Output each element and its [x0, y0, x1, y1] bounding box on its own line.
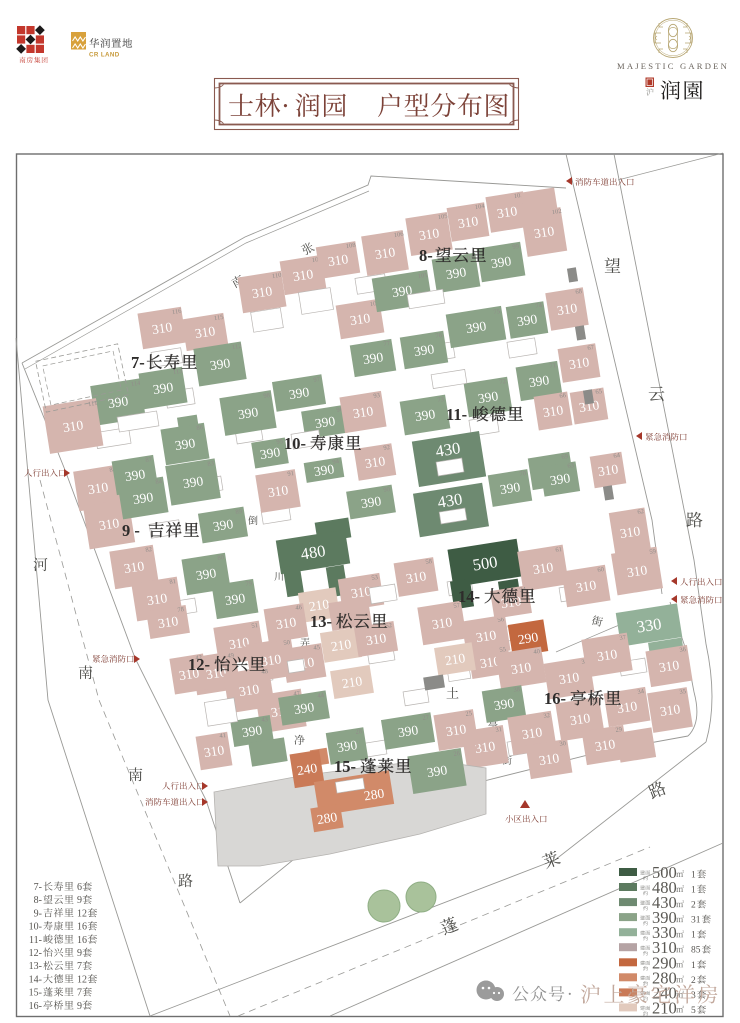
svg-text:1: 1: [691, 871, 696, 881]
svg-text:68: 68: [575, 288, 583, 296]
svg-text:10-: 10-: [284, 434, 306, 453]
svg-text:59: 59: [649, 548, 657, 556]
svg-text:9: 9: [77, 948, 82, 959]
svg-text:390: 390: [132, 489, 155, 507]
svg-text:16: 16: [77, 935, 87, 946]
svg-text:310: 310: [275, 614, 298, 632]
svg-text:MAJESTIC GARDEN: MAJESTIC GARDEN: [617, 61, 729, 71]
svg-text:240: 240: [296, 760, 319, 778]
svg-text:16-: 16-: [29, 1001, 42, 1012]
svg-text:310: 310: [496, 203, 519, 221]
svg-text:9-: 9-: [34, 908, 42, 919]
svg-text:390: 390: [397, 722, 420, 740]
svg-text:8-: 8-: [34, 895, 42, 906]
svg-text:11-: 11-: [446, 405, 467, 424]
svg-text:390: 390: [174, 435, 197, 453]
svg-text:60: 60: [597, 566, 605, 574]
svg-text:310: 310: [62, 417, 85, 435]
svg-text:110: 110: [272, 272, 282, 280]
svg-text:310: 310: [349, 310, 372, 328]
svg-text:49: 49: [227, 652, 235, 660]
svg-text:310: 310: [431, 614, 454, 632]
svg-text:310: 310: [364, 453, 387, 471]
svg-text:500: 500: [471, 552, 498, 575]
svg-text:45: 45: [313, 644, 321, 652]
svg-text:430: 430: [436, 489, 463, 512]
svg-text:390: 390: [107, 393, 130, 411]
svg-text:1: 1: [691, 931, 696, 941]
svg-text:390: 390: [237, 404, 260, 422]
svg-text:310: 310: [475, 627, 498, 645]
svg-text:25: 25: [465, 710, 473, 718]
svg-text:93: 93: [373, 392, 381, 400]
svg-text:310: 310: [87, 479, 110, 497]
svg-text:390: 390: [209, 355, 232, 373]
svg-text:95: 95: [276, 438, 284, 446]
svg-text:390: 390: [360, 493, 383, 511]
svg-text:78: 78: [177, 606, 185, 614]
svg-text:390: 390: [314, 413, 337, 431]
svg-text:390: 390: [241, 722, 264, 740]
svg-text:15-: 15-: [334, 757, 356, 776]
svg-text:53: 53: [371, 574, 379, 582]
svg-text:280: 280: [363, 785, 386, 803]
svg-text:112: 112: [232, 343, 242, 351]
svg-text:31: 31: [495, 726, 503, 734]
svg-text:310: 310: [405, 568, 428, 586]
svg-text:32: 32: [543, 712, 551, 720]
svg-text:310: 310: [194, 323, 217, 341]
svg-text:43: 43: [261, 716, 269, 724]
svg-text:99: 99: [512, 243, 520, 251]
svg-text:330: 330: [635, 614, 662, 637]
svg-text:390: 390: [362, 349, 385, 367]
svg-text:310: 310: [365, 630, 388, 648]
svg-text:390: 390: [414, 406, 437, 424]
svg-text:7: 7: [77, 988, 82, 999]
svg-text:310: 310: [292, 266, 315, 284]
svg-text:210: 210: [330, 636, 353, 654]
svg-text:73: 73: [437, 396, 445, 404]
svg-text:390: 390: [499, 479, 522, 497]
svg-text:310: 310: [98, 515, 121, 533]
svg-text:9: 9: [77, 895, 82, 906]
svg-text:310: 310: [418, 225, 441, 243]
svg-text:31: 31: [691, 916, 701, 926]
svg-text:13-: 13-: [29, 961, 42, 972]
svg-text:310: 310: [594, 736, 617, 754]
svg-text:111: 111: [88, 400, 98, 408]
svg-text:390: 390: [288, 384, 311, 402]
svg-text:71: 71: [549, 362, 557, 370]
svg-text:310: 310: [538, 750, 561, 768]
svg-text:81: 81: [169, 578, 177, 586]
svg-text:90: 90: [383, 486, 391, 494]
svg-text:40: 40: [533, 648, 541, 656]
svg-text:290: 290: [517, 629, 540, 647]
svg-text:390: 390: [426, 762, 449, 780]
svg-text:310: 310: [659, 701, 682, 719]
svg-text:7-: 7-: [34, 882, 42, 893]
svg-text:390: 390: [465, 318, 488, 336]
svg-text:390: 390: [549, 470, 572, 488]
svg-text:6: 6: [77, 882, 82, 893]
svg-text:430: 430: [434, 438, 461, 461]
svg-text:310: 310: [558, 669, 581, 687]
svg-text:390: 390: [195, 565, 218, 583]
svg-text:1: 1: [691, 961, 696, 971]
svg-text:33: 33: [591, 698, 599, 706]
svg-text:82: 82: [145, 546, 153, 554]
svg-text:62: 62: [637, 508, 645, 516]
svg-text:65: 65: [595, 388, 603, 396]
svg-text:390: 390: [293, 699, 316, 717]
svg-text:390: 390: [224, 590, 247, 608]
svg-text:80: 80: [217, 554, 225, 562]
svg-text:51: 51: [251, 622, 259, 630]
svg-text:390: 390: [516, 311, 539, 329]
svg-text:310: 310: [445, 721, 468, 739]
svg-text:5: 5: [691, 1006, 696, 1016]
svg-text:310: 310: [157, 613, 180, 631]
svg-text:79: 79: [245, 580, 253, 588]
svg-text:310: 310: [123, 558, 146, 576]
svg-text:11-: 11-: [29, 935, 42, 946]
svg-text:390: 390: [445, 264, 468, 282]
svg-text:16-: 16-: [544, 689, 566, 708]
svg-text:9: 9: [77, 1001, 82, 1012]
svg-text:390: 390: [490, 253, 513, 271]
svg-text:12: 12: [77, 908, 87, 919]
svg-text:91: 91: [287, 470, 295, 478]
svg-text:52: 52: [385, 622, 393, 630]
svg-text:69: 69: [561, 453, 569, 461]
svg-text:390: 390: [336, 737, 359, 755]
svg-text:12-: 12-: [188, 655, 210, 674]
svg-text:89: 89: [235, 508, 243, 516]
svg-text:14-: 14-: [29, 974, 42, 985]
svg-text:390: 390: [493, 695, 516, 713]
svg-text:310: 310: [327, 251, 350, 269]
svg-text:390: 390: [182, 473, 205, 491]
svg-text:310: 310: [251, 283, 274, 301]
svg-text:310: 310: [619, 523, 642, 541]
svg-text:12: 12: [77, 974, 87, 985]
svg-text:390: 390: [212, 516, 235, 534]
svg-text:390: 390: [152, 379, 175, 397]
svg-text:310: 310: [267, 482, 290, 500]
svg-text:210: 210: [652, 998, 677, 1017]
svg-text:12-: 12-: [29, 948, 42, 959]
svg-text:310: 310: [626, 562, 649, 580]
svg-text:48: 48: [261, 668, 269, 676]
svg-text:85: 85: [691, 946, 701, 956]
svg-text:61: 61: [555, 546, 563, 554]
svg-text:7: 7: [77, 961, 82, 972]
svg-text:310: 310: [521, 724, 544, 742]
svg-text:14-: 14-: [458, 587, 480, 606]
svg-text:390: 390: [259, 444, 282, 462]
svg-text:480: 480: [299, 541, 326, 564]
svg-text:10-: 10-: [29, 922, 42, 933]
svg-text:310: 310: [510, 659, 533, 677]
svg-text:210: 210: [341, 673, 364, 691]
svg-text:8-: 8-: [419, 246, 433, 265]
svg-text:390: 390: [528, 372, 551, 390]
svg-text:38: 38: [513, 686, 521, 694]
svg-text:72: 72: [499, 378, 507, 386]
svg-text:310: 310: [146, 590, 169, 608]
svg-text:1: 1: [691, 886, 696, 896]
svg-text:115: 115: [214, 314, 224, 322]
svg-text:63: 63: [567, 462, 575, 470]
svg-text:2: 2: [691, 976, 696, 986]
svg-text:30: 30: [559, 740, 567, 748]
svg-text:7-: 7-: [131, 353, 145, 372]
svg-text:390: 390: [477, 388, 500, 406]
svg-text:310: 310: [658, 657, 681, 675]
svg-text:98: 98: [263, 392, 271, 400]
svg-text:28: 28: [355, 728, 363, 736]
svg-text:310: 310: [352, 403, 375, 421]
svg-text:58: 58: [425, 558, 433, 566]
svg-text:92: 92: [383, 444, 391, 452]
svg-text:310: 310: [374, 244, 397, 262]
svg-text:310: 310: [596, 646, 619, 664]
svg-text:310: 310: [533, 223, 556, 241]
svg-text:310: 310: [532, 559, 555, 577]
svg-text:310: 310: [569, 710, 592, 728]
svg-text:16: 16: [77, 922, 87, 933]
svg-text:210: 210: [444, 650, 467, 668]
svg-text:390: 390: [413, 341, 436, 359]
svg-text:280: 280: [316, 809, 339, 827]
svg-text:310: 310: [556, 300, 579, 318]
svg-text:CR LAND: CR LAND: [89, 52, 120, 59]
svg-text:35: 35: [679, 688, 687, 696]
svg-text:310: 310: [457, 213, 480, 231]
svg-text:310: 310: [597, 461, 620, 479]
svg-text:15-: 15-: [29, 988, 42, 999]
svg-text:83: 83: [207, 460, 215, 468]
svg-text:70: 70: [519, 470, 527, 478]
svg-text:310: 310: [568, 354, 591, 372]
svg-text:9 -: 9 -: [122, 521, 140, 540]
svg-text:2: 2: [691, 901, 696, 911]
svg-text:310: 310: [151, 319, 174, 337]
svg-text:310: 310: [203, 742, 226, 760]
svg-text:310: 310: [575, 577, 598, 595]
svg-text:13-: 13-: [310, 612, 332, 631]
svg-text:41: 41: [219, 732, 227, 740]
svg-text:310: 310: [542, 402, 565, 420]
svg-text:75: 75: [493, 308, 501, 316]
